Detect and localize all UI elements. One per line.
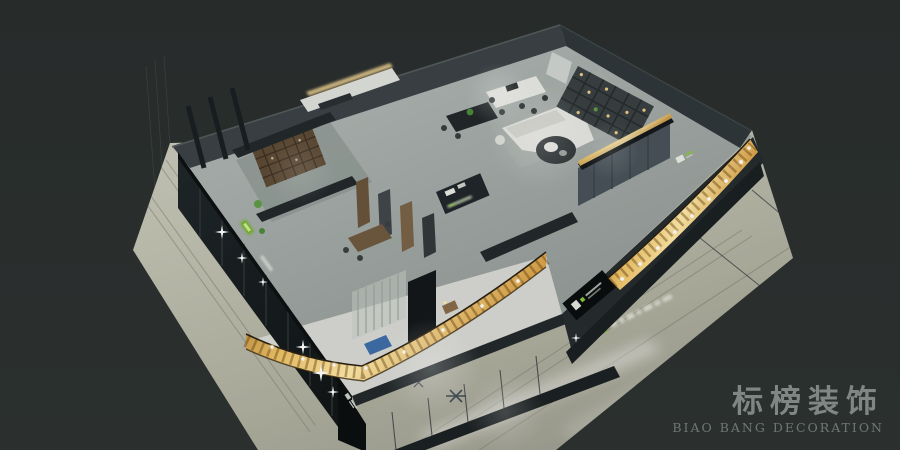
render-stage: 标榜装饰 BIAO BANG DECORATION — [0, 0, 900, 450]
showroom-render: 标榜装饰 BIAO BANG DECORATION — [0, 0, 900, 450]
vignette — [0, 0, 900, 450]
